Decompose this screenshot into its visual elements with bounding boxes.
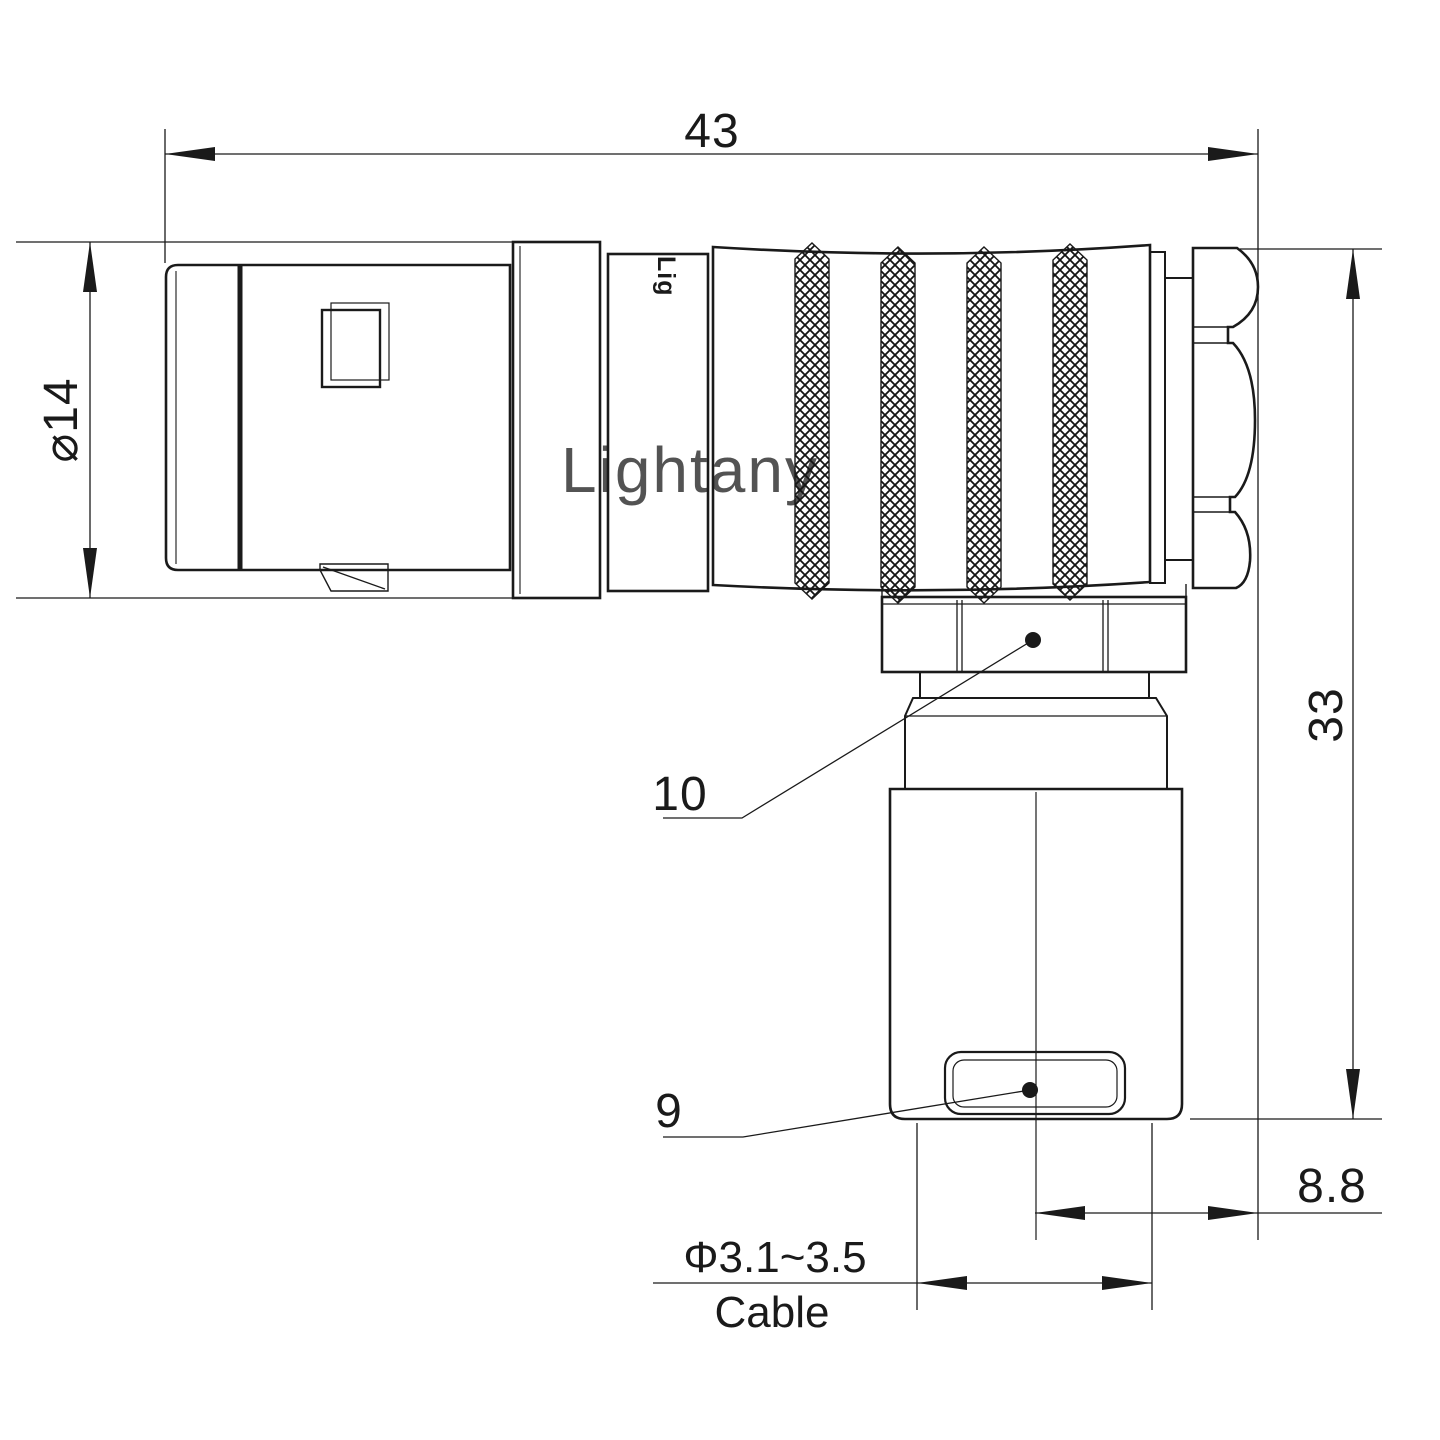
engineering-drawing-page: Lightany — [0, 0, 1440, 1440]
arrowhead-left — [165, 147, 215, 161]
arrowhead-up — [1346, 249, 1360, 299]
knurl-band — [881, 247, 915, 603]
dim-text-diameter: ⌀14 — [35, 377, 88, 462]
leader-dot — [1022, 1082, 1038, 1098]
arrowhead-up — [83, 242, 97, 292]
dim-text-cable-diameter: Φ3.1~3.5 — [683, 1233, 866, 1282]
knurl-band — [1053, 244, 1087, 600]
dim-text-offset: 8.8 — [1297, 1160, 1367, 1213]
part-label-crimp: 9 — [655, 1085, 683, 1138]
dim-overall-height — [1190, 249, 1382, 1119]
latch-notch — [320, 564, 388, 591]
shell-print-text: Lig — [652, 256, 680, 297]
dim-text-cable-word: Cable — [715, 1288, 830, 1337]
connector-vertical-body — [882, 584, 1186, 1119]
leader-crimp-window — [663, 1082, 1038, 1137]
knurl-band — [795, 243, 829, 599]
arrowhead-down — [83, 548, 97, 598]
knurl-band — [967, 247, 1001, 603]
part-label-nut: 10 — [652, 768, 707, 821]
arrowhead-left — [1035, 1206, 1085, 1220]
dim-text-height: 33 — [1300, 687, 1353, 742]
connector-technical-drawing: Lightany — [0, 0, 1440, 1440]
neck-and-sleeve — [905, 672, 1167, 789]
dim-front-diameter — [16, 242, 513, 598]
key-tab — [322, 303, 389, 387]
knurled-grip — [713, 243, 1150, 603]
front-shell — [166, 265, 510, 591]
arrowhead-right — [1208, 147, 1258, 161]
leader-dot — [1025, 632, 1041, 648]
dim-overall-length — [165, 129, 1258, 1240]
arrowhead-right — [1208, 1206, 1258, 1220]
arrowhead-down — [1346, 1069, 1360, 1119]
arrowhead-left — [917, 1276, 967, 1290]
back-cap — [1193, 248, 1258, 588]
arrowhead-right — [1102, 1276, 1152, 1290]
crimp-window — [945, 1052, 1125, 1114]
back-rings — [1150, 252, 1193, 583]
connector-horizontal-body — [166, 242, 1258, 603]
dim-text-length: 43 — [684, 105, 739, 158]
